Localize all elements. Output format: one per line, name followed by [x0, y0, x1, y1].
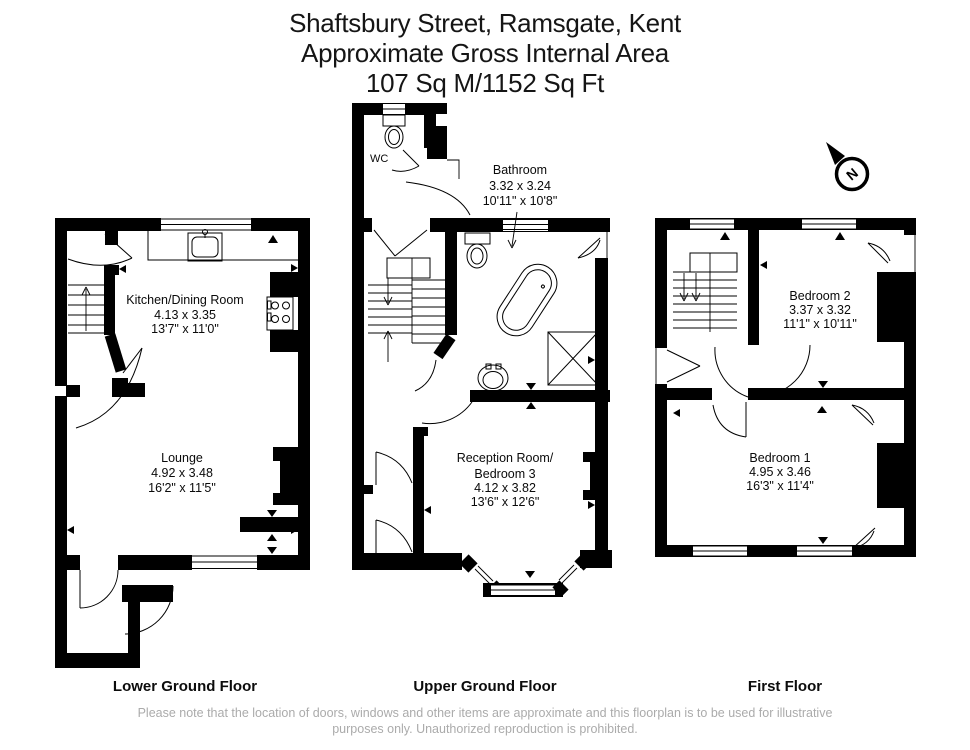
room-label-bedroom1: Bedroom 1 4.95 x 3.46 16'3" x 11'4"	[746, 451, 814, 493]
walls-lower	[55, 218, 310, 668]
room-label-bathroom: Bathroom 3.32 x 3.24 10'11" x 10'8"	[483, 163, 558, 248]
stairs-lower	[68, 285, 104, 333]
room-label-lounge: Lounge 4.92 x 3.48 16'2" x 11'5"	[148, 451, 216, 495]
lounge-metric: 4.92 x 3.48	[151, 466, 213, 480]
wc-label: WC	[370, 153, 388, 165]
bedroom2-metric: 3.37 x 3.32	[789, 303, 851, 317]
compass-n-label: N	[843, 165, 861, 184]
floorplan-lower-ground: Kitchen/Dining Room 4.13 x 3.35 13'7" x …	[55, 215, 315, 670]
reception-name-1: Reception Room/	[457, 451, 554, 465]
lounge-name: Lounge	[161, 451, 203, 465]
bathroom-imperial: 10'11" x 10'8"	[483, 194, 558, 208]
kitchen-name: Kitchen/Dining Room	[126, 293, 243, 307]
bathtub	[490, 257, 564, 343]
window-lounge-bottom	[192, 556, 257, 569]
compass-icon: N	[818, 136, 884, 202]
stairs-first	[673, 253, 737, 332]
room-label-kitchen: Kitchen/Dining Room 4.13 x 3.35 13'7" x …	[126, 293, 243, 336]
room-label-reception: Reception Room/ Bedroom 3 4.12 x 3.82 13…	[457, 451, 554, 509]
label-lower-ground-floor: Lower Ground Floor	[55, 678, 315, 695]
bathroom-metric: 3.32 x 3.24	[489, 179, 551, 193]
floorplan-page: Shaftsbury Street, Ramsgate, Kent Approx…	[0, 0, 970, 750]
disclaimer-line-2: purposes only. Unauthorized reproduction…	[0, 721, 970, 737]
kitchen-imperial: 13'7" x 11'0"	[151, 322, 219, 336]
toilet-wc	[383, 115, 405, 148]
reception-imperial: 13'6" x 12'6"	[471, 495, 540, 509]
wash-basin	[478, 364, 508, 391]
title-area-caption: Approximate Gross Internal Area	[0, 38, 970, 68]
floorplan-first-floor: Bedroom 2 3.37 x 3.32 11'1" x 10'11" Bed…	[650, 215, 920, 560]
label-upper-ground-floor: Upper Ground Floor	[350, 678, 620, 695]
page-title: Shaftsbury Street, Ramsgate, Kent Approx…	[0, 8, 970, 98]
reception-metric: 4.12 x 3.82	[474, 481, 536, 495]
title-address: Shaftsbury Street, Ramsgate, Kent	[0, 8, 970, 38]
sink	[148, 230, 298, 262]
label-first-floor: First Floor	[650, 678, 920, 695]
disclaimer-line-1: Please note that the location of doors, …	[0, 705, 970, 721]
title-area-value: 107 Sq M/1152 Sq Ft	[0, 68, 970, 98]
windows-first	[690, 219, 856, 556]
bay-window	[464, 557, 588, 597]
lounge-imperial: 16'2" x 11'5"	[148, 481, 216, 495]
walls-first	[655, 218, 916, 557]
bedroom2-name: Bedroom 2	[789, 289, 850, 303]
stove-icon	[267, 297, 293, 330]
bedroom1-name: Bedroom 1	[749, 451, 810, 465]
toilet-bathroom	[465, 233, 490, 268]
window-kitchen-top	[161, 219, 251, 230]
bedroom1-metric: 4.95 x 3.46	[749, 465, 811, 479]
reception-name-2: Bedroom 3	[474, 467, 535, 481]
disclaimer: Please note that the location of doors, …	[0, 705, 970, 737]
bedroom2-imperial: 11'1" x 10'11"	[783, 317, 857, 331]
floorplan-upper-ground: WC Bathroom	[350, 100, 620, 600]
kitchen-metric: 4.13 x 3.35	[154, 308, 216, 322]
stairs-upper	[368, 258, 445, 362]
bathroom-name: Bathroom	[493, 163, 547, 177]
shower	[548, 332, 598, 385]
bedroom1-imperial: 16'3" x 11'4"	[746, 479, 814, 493]
measure-arrows-lower	[67, 235, 298, 554]
room-label-bedroom2: Bedroom 2 3.37 x 3.32 11'1" x 10'11"	[783, 289, 857, 331]
